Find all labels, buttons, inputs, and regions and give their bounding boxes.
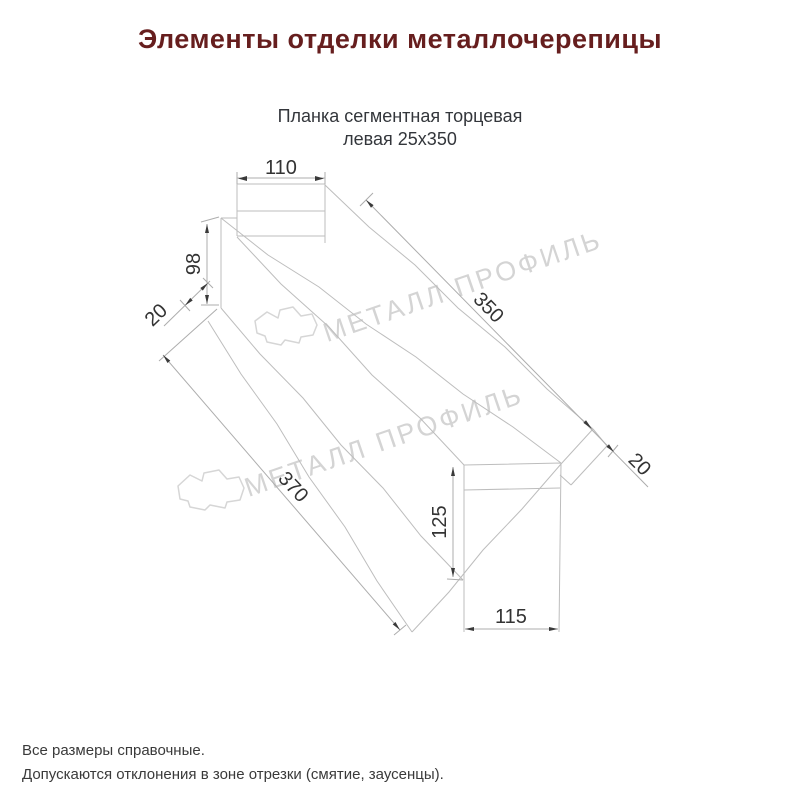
footnotes: Все размеры справочные. Допускаются откл… [22,739,444,787]
dimension-98: 98 [183,217,219,305]
cloud-logo-icon [178,470,244,510]
watermark-lower: МЕТАЛЛ ПРОФИЛЬ [178,379,527,510]
dimension-label-20-right: 20 [624,449,655,480]
dimension-label-110: 110 [265,157,297,179]
footnote-line-1: Все размеры справочные. [22,739,444,763]
dimension-label-125: 125 [429,505,451,538]
dimension-label-115: 115 [495,606,527,628]
profile-top-rectangle [221,184,325,308]
watermark-text: МЕТАЛЛ ПРОФИЛЬ [319,224,606,348]
dimension-label-98: 98 [183,253,205,275]
watermark-upper: МЕТАЛЛ ПРОФИЛЬ [255,224,606,348]
dimension-label-20-left: 20 [141,300,172,331]
dimension-115: 115 [465,606,558,631]
footnote-line-2: Допускаются отклонения в зоне отрезки (с… [22,763,444,787]
dimension-125: 125 [429,467,463,580]
dimension-110: 110 [237,157,325,184]
technical-drawing: МЕТАЛЛ ПРОФИЛЬ МЕТАЛЛ ПРОФИЛЬ 110 9 [0,0,800,800]
cloud-logo-icon [255,307,317,345]
